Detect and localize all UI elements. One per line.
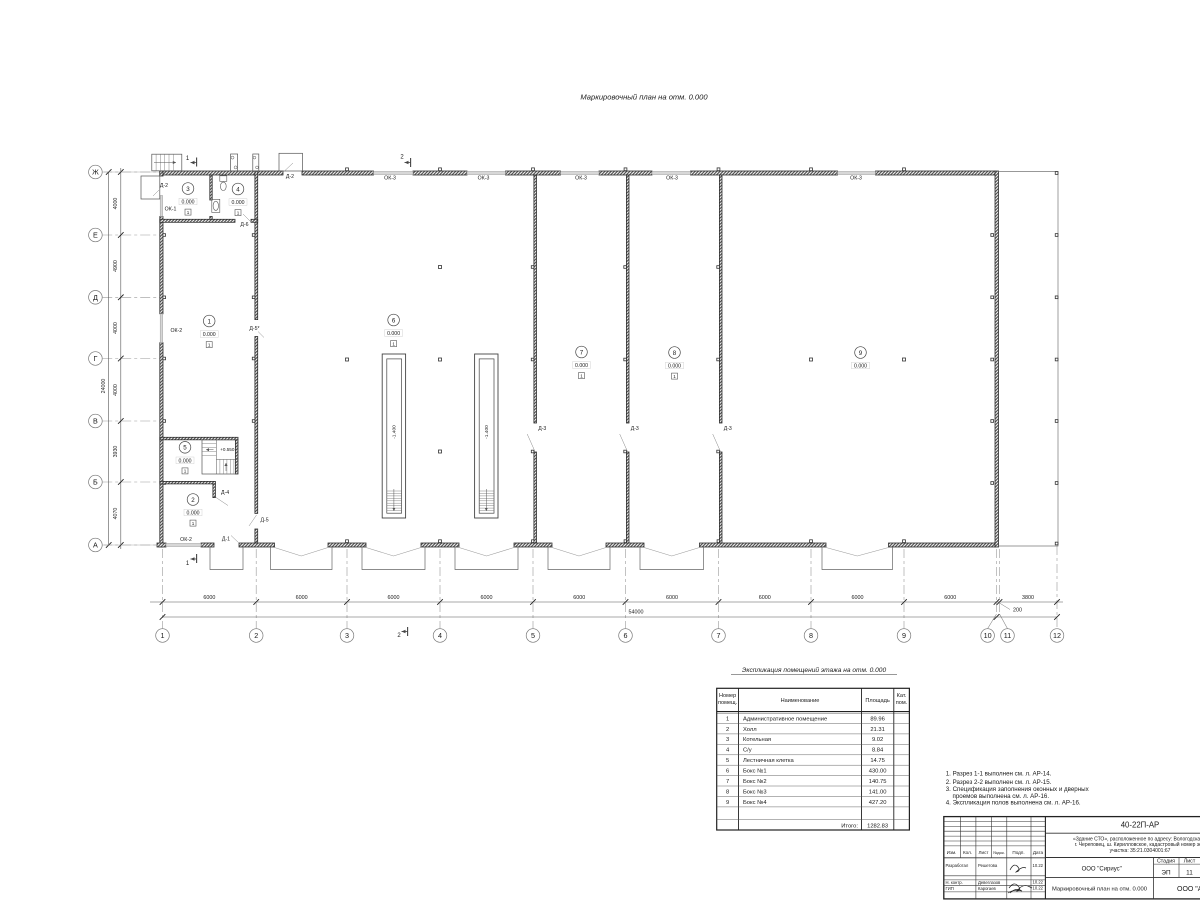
svg-text:0.000: 0.000 bbox=[575, 363, 588, 369]
svg-text:6000: 6000 bbox=[759, 595, 771, 601]
svg-text:Г: Г bbox=[93, 354, 97, 363]
svg-text:3. Спецификация заполнения око: 3. Спецификация заполнения оконных и две… bbox=[946, 786, 1090, 793]
svg-text:11: 11 bbox=[1186, 870, 1193, 877]
svg-text:Экспликация помещений этажа на: Экспликация помещений этажа на отм. 0.00… bbox=[742, 666, 887, 674]
svg-text:2: 2 bbox=[726, 727, 729, 733]
svg-text:1: 1 bbox=[161, 631, 165, 640]
svg-text:пом.: пом. bbox=[896, 700, 908, 706]
svg-text:Д-5*: Д-5* bbox=[249, 326, 259, 332]
svg-text:6: 6 bbox=[392, 317, 396, 324]
svg-text:141.00: 141.00 bbox=[869, 789, 887, 795]
svg-text:ГИП: ГИП bbox=[946, 886, 954, 891]
svg-text:6000: 6000 bbox=[573, 595, 585, 601]
svg-text:ООО "Сириус": ООО "Сириус" bbox=[1082, 867, 1122, 873]
svg-text:4000: 4000 bbox=[113, 198, 119, 210]
svg-text:10.22: 10.22 bbox=[1033, 886, 1044, 891]
svg-text:-1.400: -1.400 bbox=[392, 425, 398, 439]
svg-text:Бокс №3: Бокс №3 bbox=[743, 789, 767, 795]
svg-text:1: 1 bbox=[192, 521, 195, 526]
svg-text:1. Разрез 1-1 выполнен см. л.: 1. Разрез 1-1 выполнен см. л. АР-14. bbox=[946, 771, 1052, 778]
svg-text:Кат.: Кат. bbox=[897, 693, 907, 699]
svg-text:Подп.: Подп. bbox=[1012, 850, 1024, 855]
svg-text:7: 7 bbox=[726, 779, 729, 785]
svg-text:Е: Е bbox=[93, 231, 98, 240]
svg-text:Н. контр.: Н. контр. bbox=[946, 880, 963, 885]
svg-text:8: 8 bbox=[809, 631, 813, 640]
svg-text:Стадия: Стадия bbox=[1157, 859, 1175, 865]
svg-text:Девеглазов: Девеглазов bbox=[978, 880, 1001, 885]
svg-text:6000: 6000 bbox=[944, 595, 956, 601]
svg-text:Наименование: Наименование bbox=[781, 698, 820, 704]
svg-text:Административное помещение: Административное помещение bbox=[743, 716, 827, 722]
svg-text:9: 9 bbox=[859, 350, 863, 357]
svg-text:1: 1 bbox=[237, 210, 240, 215]
svg-text:Б: Б bbox=[93, 478, 98, 487]
svg-text:10: 10 bbox=[984, 631, 992, 640]
svg-text:0.000: 0.000 bbox=[182, 200, 195, 206]
svg-text:5: 5 bbox=[183, 445, 187, 452]
svg-text:5: 5 bbox=[726, 758, 729, 764]
svg-text:Изм.: Изм. bbox=[947, 850, 957, 855]
svg-text:6000: 6000 bbox=[666, 595, 678, 601]
svg-text:помещ.: помещ. bbox=[718, 700, 738, 706]
svg-text:Д-3: Д-3 bbox=[538, 426, 546, 432]
svg-text:+0.550: +0.550 bbox=[220, 447, 235, 452]
svg-text:ОК-1: ОК-1 bbox=[165, 207, 177, 213]
svg-text:Д: Д bbox=[93, 293, 98, 302]
svg-text:А: А bbox=[93, 541, 98, 550]
svg-text:Лист: Лист bbox=[979, 850, 990, 855]
svg-text:3: 3 bbox=[726, 737, 729, 743]
svg-text:21.31: 21.31 bbox=[870, 727, 885, 733]
svg-text:9: 9 bbox=[726, 800, 729, 806]
svg-text:Лист: Лист bbox=[1184, 859, 1196, 865]
svg-text:4. Экспликация полов выполнена: 4. Экспликация полов выполнена см. л. АР… bbox=[946, 800, 1081, 807]
svg-text:8: 8 bbox=[673, 350, 677, 357]
svg-text:6000: 6000 bbox=[203, 595, 215, 601]
svg-text:ОК-3: ОК-3 bbox=[666, 176, 678, 182]
svg-text:4000: 4000 bbox=[113, 322, 119, 334]
svg-text:0.000: 0.000 bbox=[232, 200, 245, 206]
svg-text:9.02: 9.02 bbox=[872, 737, 883, 743]
svg-text:6: 6 bbox=[624, 631, 628, 640]
svg-text:14.75: 14.75 bbox=[870, 758, 885, 764]
svg-text:-1.400: -1.400 bbox=[484, 425, 490, 439]
svg-text:ОК-3: ОК-3 bbox=[850, 176, 862, 182]
svg-text:1282.83: 1282.83 bbox=[867, 823, 888, 829]
svg-text:Площадь: Площадь bbox=[865, 698, 889, 704]
svg-text:участка: 35:21.0304001:67: участка: 35:21.0304001:67 bbox=[1110, 848, 1171, 854]
svg-text:6000: 6000 bbox=[388, 595, 400, 601]
svg-text:430.00: 430.00 bbox=[869, 769, 887, 775]
svg-text:Дата: Дата bbox=[1033, 850, 1044, 855]
svg-text:1: 1 bbox=[580, 373, 583, 378]
svg-text:4900: 4900 bbox=[113, 260, 119, 272]
svg-text:7: 7 bbox=[580, 349, 584, 356]
svg-text:Кол.: Кол. bbox=[963, 850, 972, 855]
svg-text:4: 4 bbox=[236, 186, 240, 193]
svg-text:Д-3: Д-3 bbox=[631, 426, 639, 432]
svg-text:Лестничная клетка: Лестничная клетка bbox=[743, 758, 795, 764]
svg-text:12: 12 bbox=[1053, 631, 1061, 640]
svg-text:0.000: 0.000 bbox=[668, 364, 681, 370]
svg-text:0.000: 0.000 bbox=[187, 511, 200, 517]
svg-text:Маркировочный план на отм. 0.0: Маркировочный план на отм. 0.000 bbox=[580, 93, 708, 102]
svg-text:1: 1 bbox=[187, 210, 190, 215]
svg-text:ОК-3: ОК-3 bbox=[575, 176, 587, 182]
svg-text:24000: 24000 bbox=[101, 379, 107, 394]
svg-text:Котельная: Котельная bbox=[743, 737, 771, 743]
svg-text:В: В bbox=[93, 417, 98, 426]
svg-text:0.000: 0.000 bbox=[387, 331, 400, 337]
svg-text:1: 1 bbox=[673, 374, 676, 379]
svg-text:10.22: 10.22 bbox=[1033, 863, 1044, 868]
svg-text:С/у: С/у bbox=[743, 748, 752, 754]
svg-text:Д-3: Д-3 bbox=[724, 426, 732, 432]
svg-text:427.20: 427.20 bbox=[869, 800, 887, 806]
svg-text:200: 200 bbox=[1013, 608, 1022, 614]
svg-text:6: 6 bbox=[726, 769, 729, 775]
svg-text:8.84: 8.84 bbox=[872, 748, 884, 754]
svg-text:1: 1 bbox=[184, 469, 187, 474]
svg-text:№док.: №док. bbox=[993, 850, 1005, 855]
svg-text:1: 1 bbox=[207, 318, 211, 325]
svg-text:0.000: 0.000 bbox=[203, 332, 216, 338]
svg-text:89.96: 89.96 bbox=[870, 716, 885, 722]
svg-text:Итого:: Итого: bbox=[841, 823, 858, 829]
svg-text:ООО "Ал: ООО "Ал bbox=[1177, 886, 1200, 893]
svg-text:7: 7 bbox=[717, 631, 721, 640]
svg-text:Д-5: Д-5 bbox=[261, 518, 269, 524]
svg-text:1: 1 bbox=[392, 341, 395, 346]
svg-text:Карогаев: Карогаев bbox=[978, 886, 997, 891]
svg-text:40-22П-АР: 40-22П-АР bbox=[1121, 821, 1160, 830]
svg-text:54000: 54000 bbox=[629, 610, 644, 616]
svg-text:3: 3 bbox=[186, 186, 190, 193]
svg-text:10.22: 10.22 bbox=[1033, 880, 1044, 885]
svg-text:1: 1 bbox=[726, 716, 729, 722]
svg-text:Бокс №1: Бокс №1 bbox=[743, 769, 767, 775]
svg-text:9: 9 bbox=[902, 631, 906, 640]
svg-text:4000: 4000 bbox=[113, 384, 119, 396]
svg-text:140.75: 140.75 bbox=[869, 779, 887, 785]
svg-text:1: 1 bbox=[208, 342, 211, 347]
svg-text:ЭП: ЭП bbox=[1161, 870, 1171, 877]
svg-text:Д-6: Д-6 bbox=[240, 222, 248, 228]
svg-text:ОК-2: ОК-2 bbox=[180, 537, 192, 543]
svg-text:6000: 6000 bbox=[481, 595, 493, 601]
svg-text:Разработал: Разработал bbox=[946, 863, 969, 868]
svg-text:Решетова: Решетова bbox=[978, 863, 998, 868]
svg-text:Маркировочный план на отм. 0.0: Маркировочный план на отм. 0.000 bbox=[1052, 886, 1147, 893]
svg-text:3: 3 bbox=[345, 631, 349, 640]
svg-text:0.000: 0.000 bbox=[179, 458, 192, 464]
svg-text:ОК-2: ОК-2 bbox=[171, 328, 183, 334]
svg-text:Бокс №2: Бокс №2 bbox=[743, 779, 767, 785]
svg-text:Д-4: Д-4 bbox=[221, 490, 229, 496]
svg-text:4: 4 bbox=[438, 631, 442, 640]
svg-text:6000: 6000 bbox=[852, 595, 864, 601]
svg-text:4070: 4070 bbox=[113, 508, 119, 520]
svg-text:2: 2 bbox=[191, 497, 195, 504]
svg-text:3930: 3930 bbox=[113, 446, 119, 458]
svg-text:3800: 3800 bbox=[1022, 595, 1034, 601]
svg-text:Д-2: Д-2 bbox=[160, 183, 168, 189]
svg-text:Бокс №4: Бокс №4 bbox=[743, 800, 767, 806]
svg-text:ОК-3: ОК-3 bbox=[384, 176, 396, 182]
svg-text:8: 8 bbox=[726, 789, 729, 795]
svg-text:11: 11 bbox=[1004, 631, 1011, 640]
svg-text:Холл: Холл bbox=[743, 727, 757, 733]
svg-text:6000: 6000 bbox=[296, 595, 308, 601]
svg-text:5: 5 bbox=[531, 631, 535, 640]
svg-text:Номер: Номер bbox=[719, 693, 736, 699]
svg-text:ОК-3: ОК-3 bbox=[478, 176, 490, 182]
svg-text:Ж: Ж bbox=[92, 168, 99, 177]
svg-text:Д-2: Д-2 bbox=[286, 174, 294, 180]
svg-text:2. Разрез 2-2 выполнен см. л.: 2. Разрез 2-2 выполнен см. л. АР-15. bbox=[946, 779, 1052, 786]
svg-text:Д-1: Д-1 bbox=[222, 537, 230, 543]
svg-text:2: 2 bbox=[254, 631, 258, 640]
svg-text:0.000: 0.000 bbox=[854, 364, 867, 370]
